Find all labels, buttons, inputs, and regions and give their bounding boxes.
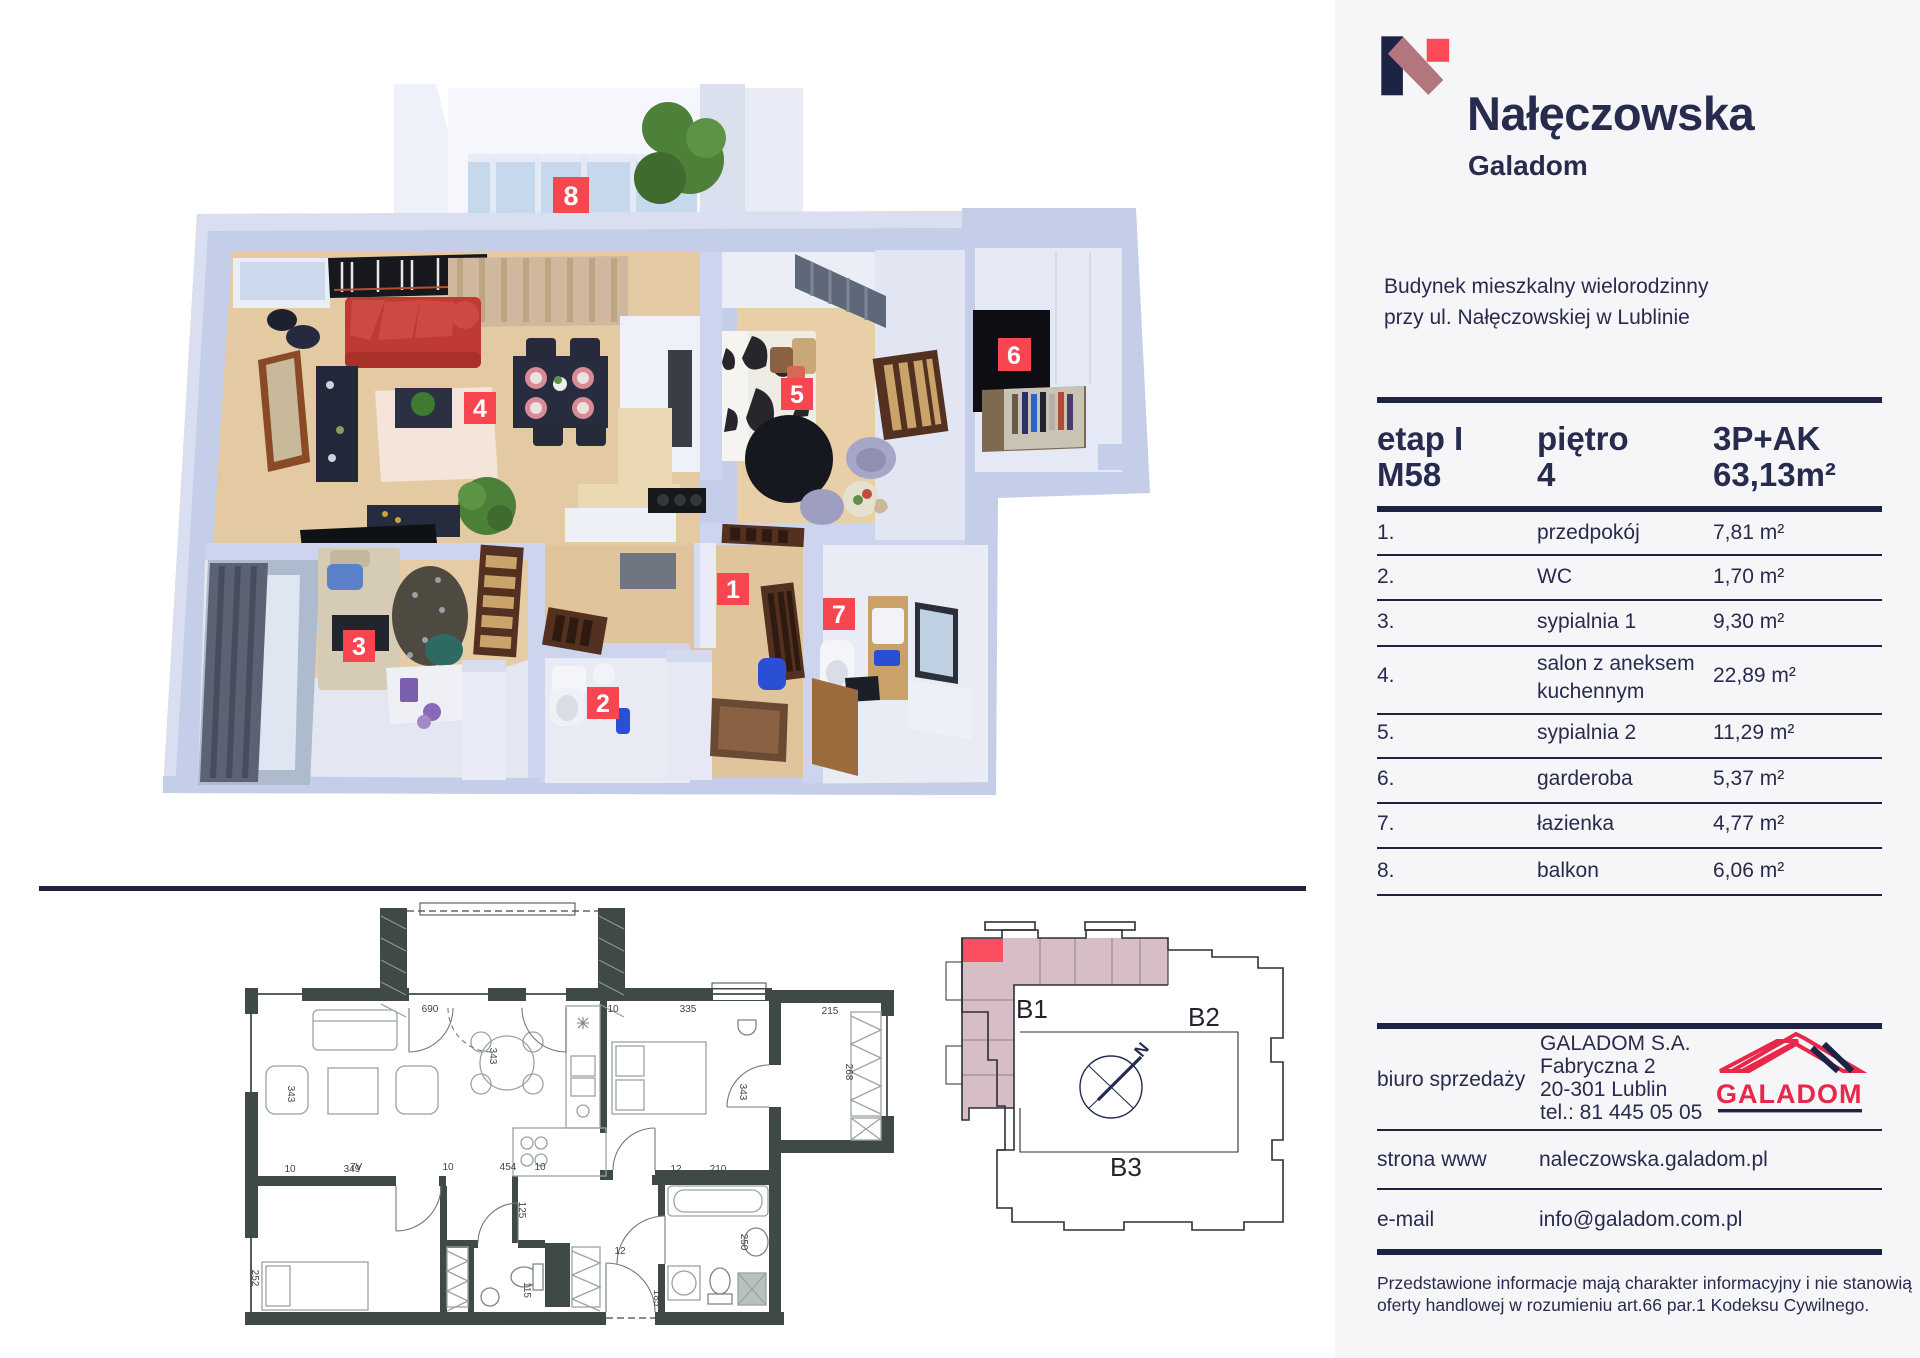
- svg-text:B2: B2: [1188, 1002, 1220, 1032]
- svg-text:10: 10: [284, 1164, 296, 1175]
- svg-text:343: 343: [737, 1084, 748, 1101]
- svg-text:454: 454: [500, 1162, 517, 1173]
- svg-text:125: 125: [516, 1202, 527, 1219]
- svg-text:155: 155: [502, 1314, 519, 1325]
- svg-text:GALADOM: GALADOM: [1716, 1079, 1862, 1109]
- svg-text:268: 268: [843, 1064, 854, 1081]
- svg-text:7V: 7V: [350, 1162, 363, 1173]
- svg-text:115: 115: [521, 1282, 532, 1298]
- svg-text:335: 335: [680, 1004, 697, 1015]
- svg-text:B1: B1: [1016, 994, 1048, 1024]
- svg-text:5: 5: [790, 381, 804, 409]
- svg-text:215: 215: [822, 1006, 839, 1017]
- svg-text:3: 3: [352, 633, 366, 661]
- svg-text:8: 8: [563, 181, 578, 211]
- svg-text:12: 12: [614, 1246, 626, 1257]
- svg-text:4: 4: [473, 395, 487, 423]
- svg-text:B3: B3: [1110, 1152, 1142, 1182]
- svg-text:343: 343: [487, 1048, 498, 1065]
- svg-text:10: 10: [442, 1162, 454, 1173]
- svg-text:10: 10: [607, 1004, 619, 1015]
- svg-text:185: 185: [651, 1290, 662, 1307]
- svg-text:343: 343: [285, 1086, 296, 1103]
- svg-text:1: 1: [726, 576, 740, 604]
- svg-text:250: 250: [738, 1234, 749, 1251]
- svg-text:10: 10: [534, 1162, 546, 1173]
- svg-text:6: 6: [1007, 342, 1021, 370]
- svg-text:690: 690: [422, 1004, 439, 1015]
- svg-text:7: 7: [832, 601, 846, 629]
- svg-text:252: 252: [249, 1270, 260, 1287]
- svg-text:N: N: [1131, 1039, 1153, 1061]
- svg-text:210: 210: [710, 1164, 727, 1175]
- svg-text:2: 2: [596, 690, 610, 718]
- svg-text:12: 12: [670, 1164, 682, 1175]
